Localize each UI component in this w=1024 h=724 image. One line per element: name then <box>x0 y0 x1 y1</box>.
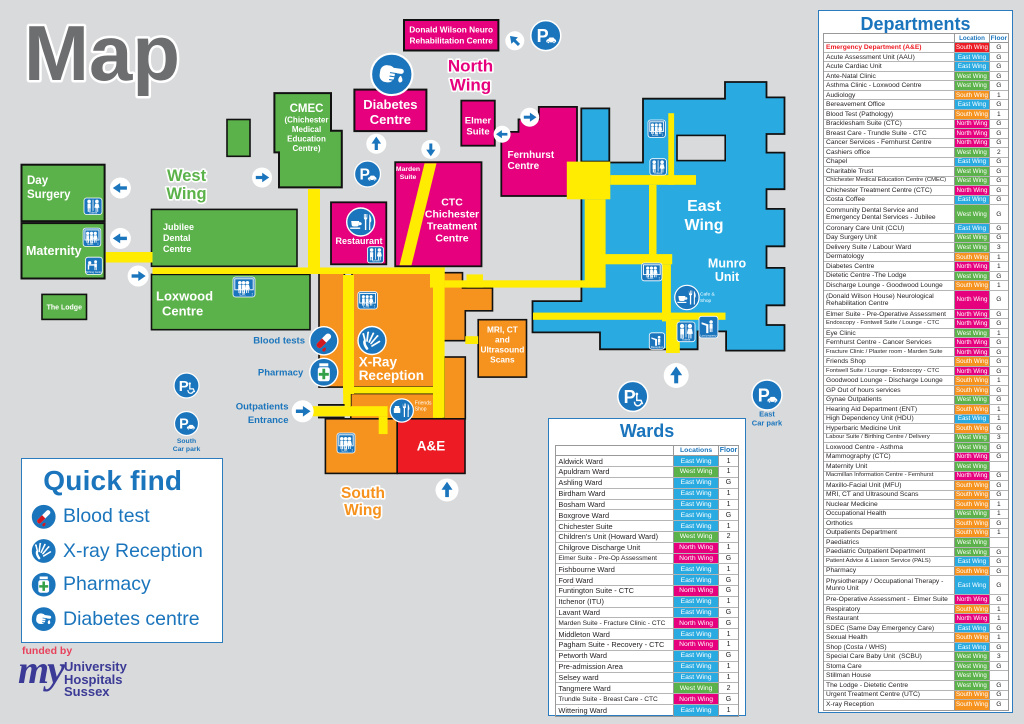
svg-text:Shop: Shop <box>415 407 427 413</box>
svg-text:P: P <box>624 387 636 407</box>
svg-text:Dental: Dental <box>163 233 191 243</box>
svg-text:Restaurant: Restaurant <box>335 236 382 246</box>
svg-text:Entrance: Entrance <box>248 415 289 426</box>
svg-text:↕: ↕ <box>373 304 375 309</box>
svg-text:Surgery: Surgery <box>27 189 71 201</box>
svg-text:Donald Wilson Neuro: Donald Wilson Neuro <box>409 25 493 35</box>
svg-text:Blood tests: Blood tests <box>253 336 305 347</box>
svg-text:Lift: Lift <box>341 447 348 452</box>
svg-text:The Lodge: The Lodge <box>47 305 82 312</box>
svg-text:↕: ↕ <box>661 132 663 137</box>
svg-text:Reception: Reception <box>359 368 424 383</box>
svg-text:Centre: Centre <box>435 233 468 245</box>
svg-text:Wing: Wing <box>685 217 724 234</box>
svg-text:Day: Day <box>27 175 49 187</box>
svg-text:Toilets: Toilets <box>682 338 691 342</box>
svg-text:Lift: Lift <box>239 291 246 296</box>
svg-text:South: South <box>177 438 196 445</box>
svg-text:↕: ↕ <box>97 241 99 246</box>
svg-text:North: North <box>448 57 493 76</box>
svg-text:Cafe &: Cafe & <box>700 292 715 298</box>
svg-text:Lost property: Lost property <box>700 334 717 338</box>
svg-text:Wing: Wing <box>344 502 382 519</box>
svg-text:Toilets: Toilets <box>371 259 380 263</box>
svg-text:Toilets: Toilets <box>89 210 98 214</box>
svg-text:Centre): Centre) <box>292 144 320 153</box>
svg-text:East: East <box>687 198 721 215</box>
svg-text:Scans: Scans <box>490 355 515 365</box>
svg-text:Suite: Suite <box>466 127 489 138</box>
svg-text:Birthing Centre: Birthing Centre <box>85 270 103 274</box>
svg-text:Chichester: Chichester <box>425 209 479 221</box>
svg-text:MRI, CT: MRI, CT <box>487 325 518 335</box>
svg-text:Fernhurst: Fernhurst <box>508 150 555 161</box>
svg-text:Suite: Suite <box>400 174 417 181</box>
svg-text:CMEC: CMEC <box>290 103 324 115</box>
svg-text:P: P <box>179 378 189 395</box>
svg-text:Map: Map <box>24 9 180 97</box>
svg-text:Car park: Car park <box>173 446 201 453</box>
svg-text:South: South <box>341 485 385 502</box>
svg-text:Reception: Reception <box>651 345 664 349</box>
svg-text:Lift: Lift <box>363 303 370 308</box>
svg-text:Munro: Munro <box>708 257 747 271</box>
svg-text:West: West <box>167 167 207 185</box>
svg-text:P: P <box>179 417 189 433</box>
svg-text:Wing: Wing <box>166 185 206 203</box>
svg-text:Elmer: Elmer <box>465 116 492 127</box>
svg-text:Treatment: Treatment <box>427 221 478 233</box>
svg-text:Maternity: Maternity <box>26 244 82 258</box>
svg-text:(Chichester: (Chichester <box>284 116 328 125</box>
svg-text:Centre: Centre <box>163 244 192 254</box>
svg-text:Wing: Wing <box>450 76 491 95</box>
svg-text:Shop: Shop <box>700 298 712 304</box>
svg-text:East: East <box>759 410 775 419</box>
svg-text:↕: ↕ <box>251 292 253 297</box>
svg-text:Centre: Centre <box>370 112 411 127</box>
svg-text:and: and <box>495 335 510 345</box>
svg-text:Centre: Centre <box>162 304 203 319</box>
svg-text:Diabetes: Diabetes <box>363 97 417 112</box>
svg-text:Rehabilitation Centre: Rehabilitation Centre <box>409 36 493 46</box>
svg-text:Centre: Centre <box>508 161 540 172</box>
svg-text:P: P <box>758 385 770 405</box>
svg-text:P: P <box>537 26 549 46</box>
svg-text:Lift: Lift <box>652 132 659 137</box>
svg-text:A&E: A&E <box>417 439 446 454</box>
svg-text:Education: Education <box>287 135 326 144</box>
svg-text:↕: ↕ <box>658 275 660 280</box>
svg-text:Outpatients: Outpatients <box>236 402 289 413</box>
svg-text:Pharmacy: Pharmacy <box>258 368 304 379</box>
svg-text:Toilets: Toilets <box>654 171 663 175</box>
svg-text:Jubilee: Jubilee <box>163 222 194 232</box>
svg-text:Car park: Car park <box>752 419 783 428</box>
svg-text:Medical: Medical <box>292 125 321 134</box>
svg-text:Ultrasound: Ultrasound <box>481 345 525 355</box>
svg-text:Unit: Unit <box>715 270 740 284</box>
svg-text:Loxwood: Loxwood <box>156 289 213 304</box>
svg-text:Lift: Lift <box>87 241 94 246</box>
svg-text:Lift: Lift <box>647 275 654 280</box>
svg-text:P: P <box>359 167 369 184</box>
svg-text:↕: ↕ <box>351 448 353 453</box>
svg-text:CTC: CTC <box>441 197 463 209</box>
svg-text:Marden: Marden <box>396 166 420 173</box>
